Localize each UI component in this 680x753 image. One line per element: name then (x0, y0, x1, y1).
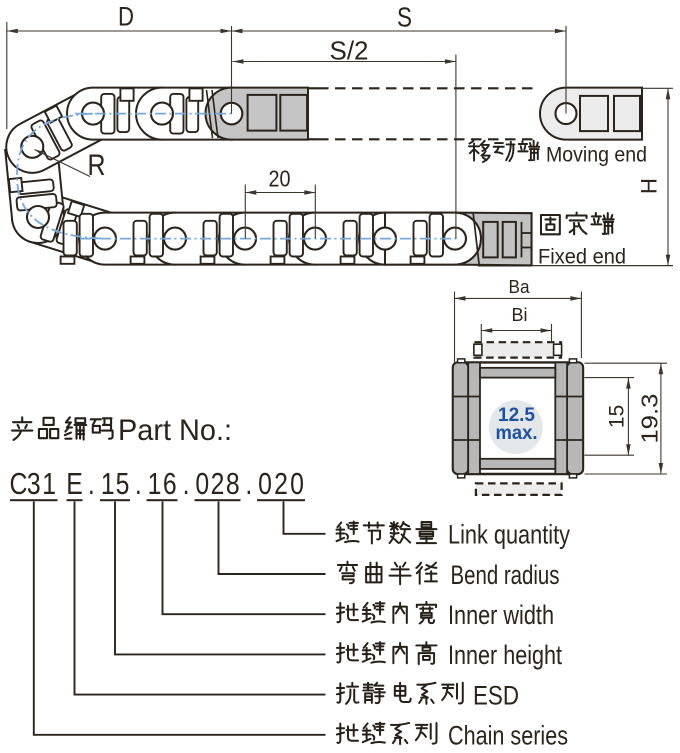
svg-text:0: 0 (195, 466, 209, 500)
svg-text:Inner height: Inner height (448, 640, 562, 670)
svg-text:Bend radius: Bend radius (451, 560, 560, 590)
svg-text:C: C (9, 466, 27, 500)
svg-text:Moving end: Moving end (546, 144, 647, 167)
svg-text:E: E (66, 466, 83, 500)
svg-text:1: 1 (148, 466, 162, 500)
svg-text:19.3: 19.3 (637, 394, 663, 444)
svg-text:1: 1 (101, 466, 115, 500)
svg-text:max.: max. (496, 423, 538, 444)
svg-text:15: 15 (606, 405, 629, 428)
svg-text:2: 2 (274, 466, 288, 500)
svg-text:Inner width: Inner width (448, 600, 554, 630)
svg-text:Bi: Bi (512, 304, 528, 325)
svg-text:6: 6 (163, 466, 177, 500)
svg-text:2: 2 (211, 466, 225, 500)
svg-text:R: R (88, 149, 106, 182)
svg-text:.: . (183, 466, 190, 500)
svg-text:.: . (88, 466, 95, 500)
svg-text:20: 20 (269, 166, 291, 192)
svg-text:8: 8 (226, 466, 240, 500)
svg-text:Fixed end: Fixed end (538, 245, 626, 269)
svg-text:H: H (637, 178, 662, 194)
svg-text:Chain series: Chain series (448, 721, 568, 751)
svg-text:Link quantity: Link quantity (448, 520, 570, 550)
svg-text:S: S (397, 2, 412, 33)
svg-text:0: 0 (290, 466, 304, 500)
svg-text:Part No.:: Part No.: (118, 414, 232, 447)
svg-text:S/2: S/2 (330, 36, 369, 66)
svg-text:5: 5 (116, 466, 130, 500)
svg-text:1: 1 (42, 466, 56, 500)
svg-text:3: 3 (27, 466, 41, 500)
svg-text:.: . (135, 466, 142, 500)
svg-text:Ba: Ba (509, 276, 531, 297)
svg-text:.: . (245, 466, 252, 500)
svg-text:0: 0 (258, 466, 272, 500)
svg-text:D: D (118, 2, 134, 32)
svg-text:ESD: ESD (473, 680, 519, 710)
